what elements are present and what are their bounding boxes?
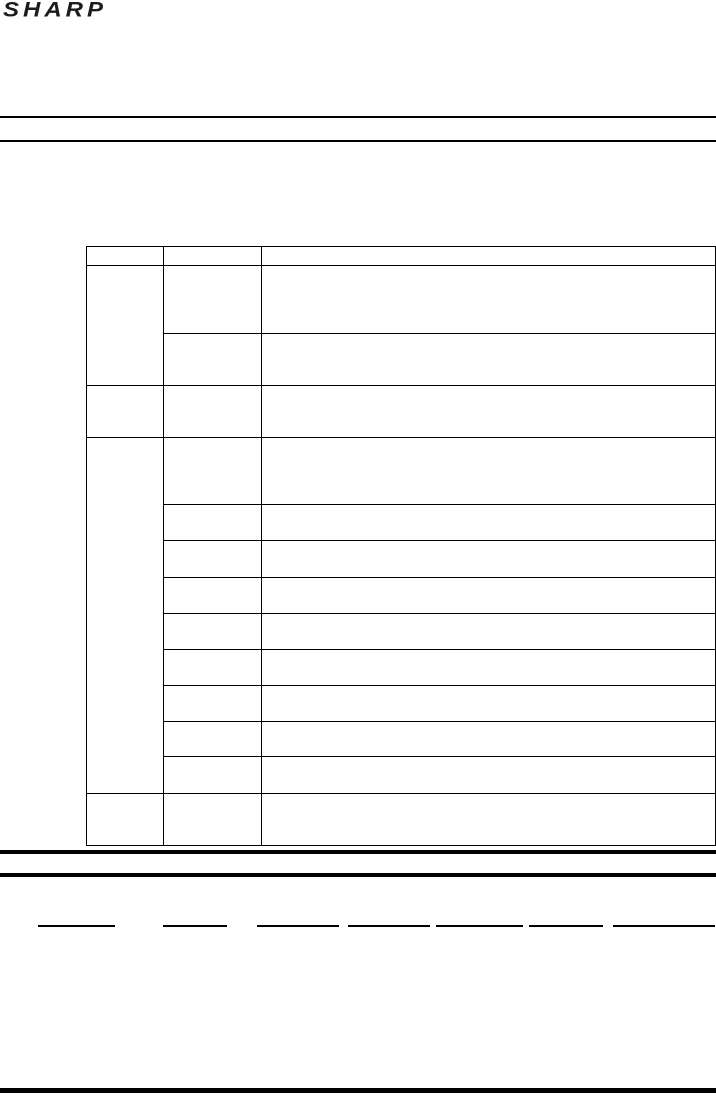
table-header-cell-1 <box>87 247 164 266</box>
table-cell <box>164 722 262 757</box>
blank-field-underline <box>163 925 227 927</box>
table-cell <box>262 722 716 757</box>
table-cell <box>164 386 262 438</box>
blank-field-underline <box>529 925 603 927</box>
table-row <box>87 794 716 846</box>
table-cell <box>164 541 262 578</box>
table-cell <box>164 334 262 386</box>
table-cell <box>164 757 262 794</box>
blank-field-underline <box>38 925 115 927</box>
table-row <box>87 541 716 578</box>
table-row <box>87 757 716 794</box>
table-row <box>87 505 716 541</box>
table-cell <box>262 757 716 794</box>
table-cell <box>262 386 716 438</box>
table-cell <box>262 794 716 846</box>
blank-field-underline <box>257 925 339 927</box>
table-row <box>87 614 716 650</box>
blank-field-underline <box>613 925 715 927</box>
table-row <box>87 686 716 722</box>
table-row <box>87 438 716 505</box>
header-rule-bottom <box>0 140 716 142</box>
table-row <box>87 650 716 686</box>
table-row <box>87 722 716 757</box>
table-cell <box>164 266 262 334</box>
section-divider-bottom <box>0 873 716 877</box>
document-page: SHARP <box>0 0 716 1102</box>
table-cell <box>262 505 716 541</box>
table-cell <box>164 505 262 541</box>
content-table <box>86 246 716 846</box>
table-header-row <box>87 247 716 266</box>
table-row <box>87 334 716 386</box>
table-row <box>87 266 716 334</box>
blank-field-underline <box>348 925 430 927</box>
table-cell-group-d <box>87 794 164 846</box>
table-row <box>87 386 716 438</box>
table-cell <box>262 266 716 334</box>
table-cell <box>262 686 716 722</box>
table-cell <box>262 541 716 578</box>
table-row <box>87 578 716 614</box>
table-cell <box>164 578 262 614</box>
table-header-cell-2 <box>164 247 262 266</box>
table-cell <box>262 334 716 386</box>
table-cell <box>164 438 262 505</box>
table-cell <box>262 650 716 686</box>
section-divider-top <box>0 850 716 854</box>
table-header-cell-3 <box>262 247 716 266</box>
table-cell <box>164 650 262 686</box>
table-cell <box>164 794 262 846</box>
table-cell <box>262 578 716 614</box>
page-footer-rule <box>0 1088 716 1093</box>
table-cell <box>164 614 262 650</box>
table-cell-group-c <box>87 438 164 794</box>
table-cell <box>164 686 262 722</box>
table-cell-group-b <box>87 386 164 438</box>
sharp-logo: SHARP <box>3 0 107 23</box>
table-cell-group-a <box>87 266 164 386</box>
blank-field-underline <box>436 925 523 927</box>
table-cell <box>262 438 716 505</box>
header-rule-top <box>0 116 716 118</box>
table-cell <box>262 614 716 650</box>
